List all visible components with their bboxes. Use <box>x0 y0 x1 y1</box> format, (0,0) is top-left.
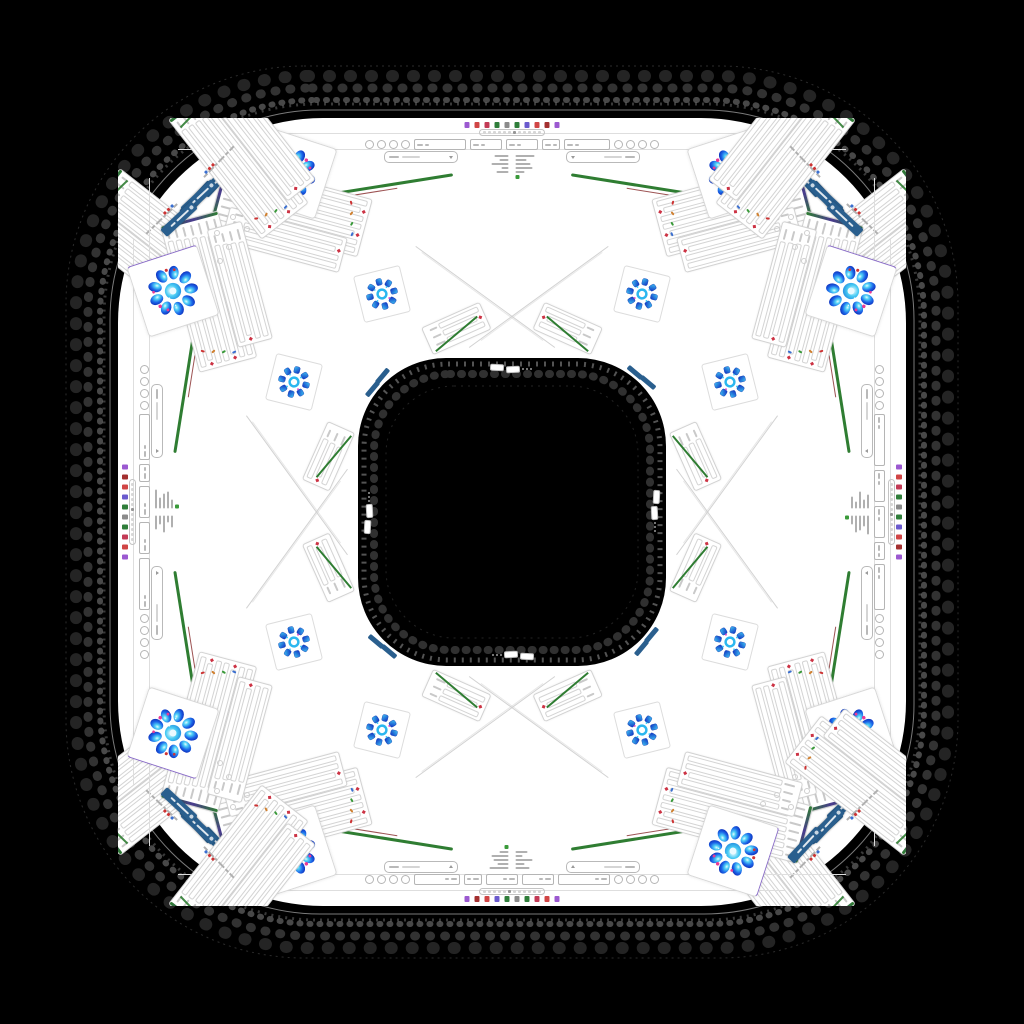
hole-edge-overlay <box>118 118 418 906</box>
hole-edge-tab <box>366 504 374 518</box>
hole-edge-dots <box>654 522 656 532</box>
hole-edge-dots <box>492 654 502 656</box>
hole-edge-tab <box>653 490 661 504</box>
inner-pill-button[interactable] <box>375 367 390 384</box>
hole-edge-tab <box>364 520 372 534</box>
hole-edge-tab <box>490 364 504 372</box>
hole-edge-dots <box>368 492 370 502</box>
hole-edge-tab <box>504 651 518 659</box>
warped-screenshot-stage <box>0 0 1024 1024</box>
hole-edge-overlays <box>0 0 1024 1024</box>
hole-edge-tab <box>520 653 534 661</box>
hole-edge-tab <box>651 506 659 520</box>
hole-edge-dots <box>522 368 532 370</box>
hole-edge-tab <box>506 366 520 374</box>
